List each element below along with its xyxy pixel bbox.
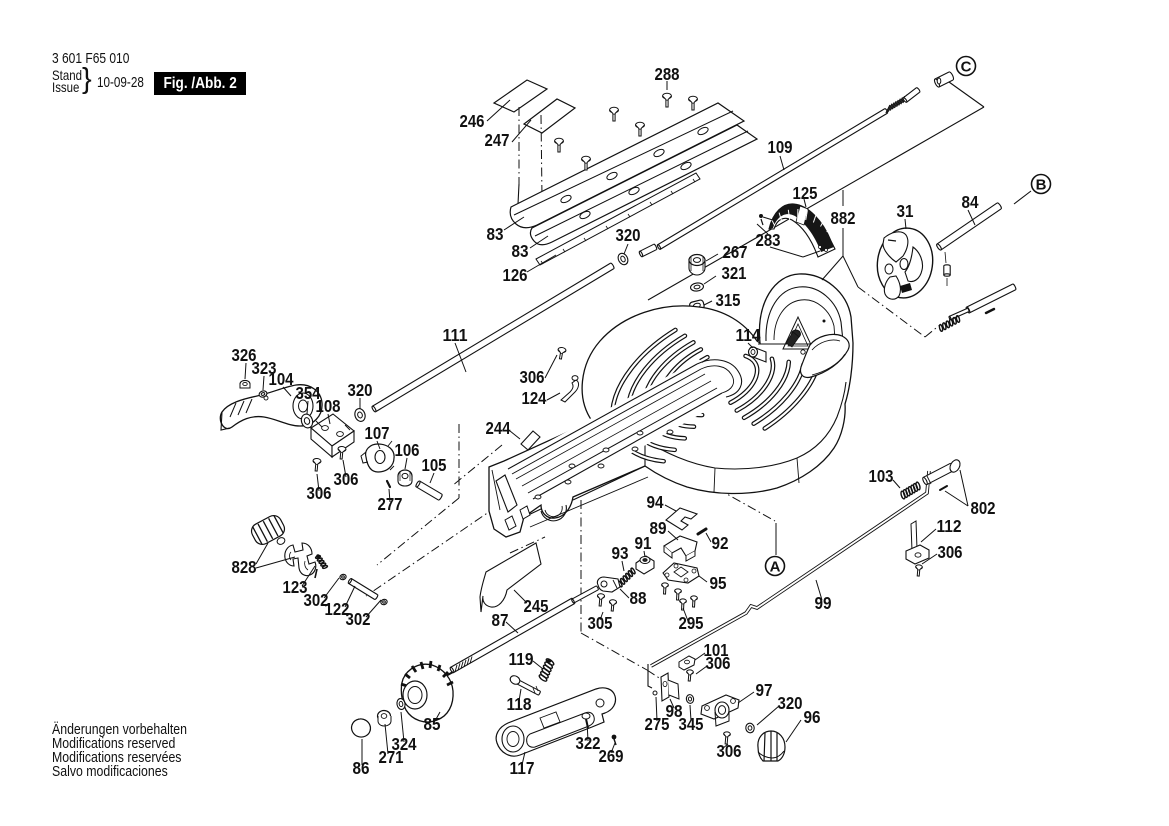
svg-text:31: 31 [897, 201, 914, 221]
svg-text:275: 275 [645, 714, 670, 734]
svg-text:246: 246 [460, 111, 485, 131]
svg-text:269: 269 [599, 746, 624, 766]
svg-text:97: 97 [756, 680, 773, 700]
svg-text:C: C [961, 59, 972, 76]
svg-text:322: 322 [576, 733, 601, 753]
svg-text:126: 126 [503, 265, 528, 285]
svg-text:306: 306 [520, 367, 545, 387]
svg-text:321: 321 [722, 263, 747, 283]
svg-text:106: 106 [395, 440, 420, 460]
svg-text:105: 105 [422, 455, 447, 475]
svg-text:A: A [770, 559, 781, 576]
svg-text:83: 83 [487, 224, 504, 244]
svg-text:92: 92 [712, 533, 729, 553]
svg-text:306: 306 [706, 653, 731, 673]
svg-text:345: 345 [679, 714, 704, 734]
svg-text:93: 93 [612, 543, 629, 563]
svg-text:882: 882 [831, 208, 856, 228]
svg-text:306: 306 [307, 483, 332, 503]
svg-text:107: 107 [365, 423, 390, 443]
svg-text:320: 320 [348, 380, 373, 400]
svg-text:96: 96 [804, 707, 821, 727]
svg-text:302: 302 [346, 609, 371, 629]
svg-text:111: 111 [443, 325, 468, 345]
svg-text:288: 288 [655, 64, 680, 84]
svg-text:91: 91 [635, 533, 652, 553]
svg-text:85: 85 [424, 714, 441, 734]
svg-text:283: 283 [756, 230, 781, 250]
svg-text:89: 89 [650, 518, 667, 538]
svg-text:112: 112 [937, 516, 962, 536]
svg-text:802: 802 [971, 498, 996, 518]
svg-text:B: B [1036, 177, 1047, 194]
svg-text:88: 88 [630, 588, 647, 608]
svg-text:86: 86 [353, 758, 370, 778]
svg-text:277: 277 [378, 494, 403, 514]
svg-text:125: 125 [793, 183, 818, 203]
svg-text:320: 320 [616, 225, 641, 245]
svg-text:104: 104 [269, 369, 294, 389]
svg-text:119: 119 [509, 649, 534, 669]
svg-text:306: 306 [717, 741, 742, 761]
svg-text:295: 295 [679, 613, 704, 633]
svg-text:245: 245 [524, 596, 549, 616]
svg-text:315: 315 [716, 290, 741, 310]
svg-text:108: 108 [316, 396, 341, 416]
svg-text:87: 87 [492, 610, 509, 630]
svg-text:271: 271 [379, 747, 404, 767]
svg-text:247: 247 [485, 130, 510, 150]
svg-text:267: 267 [723, 242, 748, 262]
svg-text:99: 99 [815, 593, 832, 613]
svg-text:94: 94 [647, 492, 664, 512]
svg-text:320: 320 [778, 693, 803, 713]
svg-text:305: 305 [588, 613, 613, 633]
svg-text:114: 114 [736, 325, 761, 345]
svg-text:828: 828 [232, 557, 257, 577]
svg-text:109: 109 [768, 137, 793, 157]
svg-text:84: 84 [962, 192, 979, 212]
svg-text:306: 306 [334, 469, 359, 489]
svg-text:117: 117 [510, 758, 535, 778]
svg-text:124: 124 [522, 388, 547, 408]
svg-text:306: 306 [938, 542, 963, 562]
svg-text:83: 83 [512, 241, 529, 261]
svg-text:103: 103 [869, 466, 894, 486]
svg-text:95: 95 [710, 573, 727, 593]
svg-text:244: 244 [486, 418, 511, 438]
svg-text:118: 118 [507, 694, 532, 714]
